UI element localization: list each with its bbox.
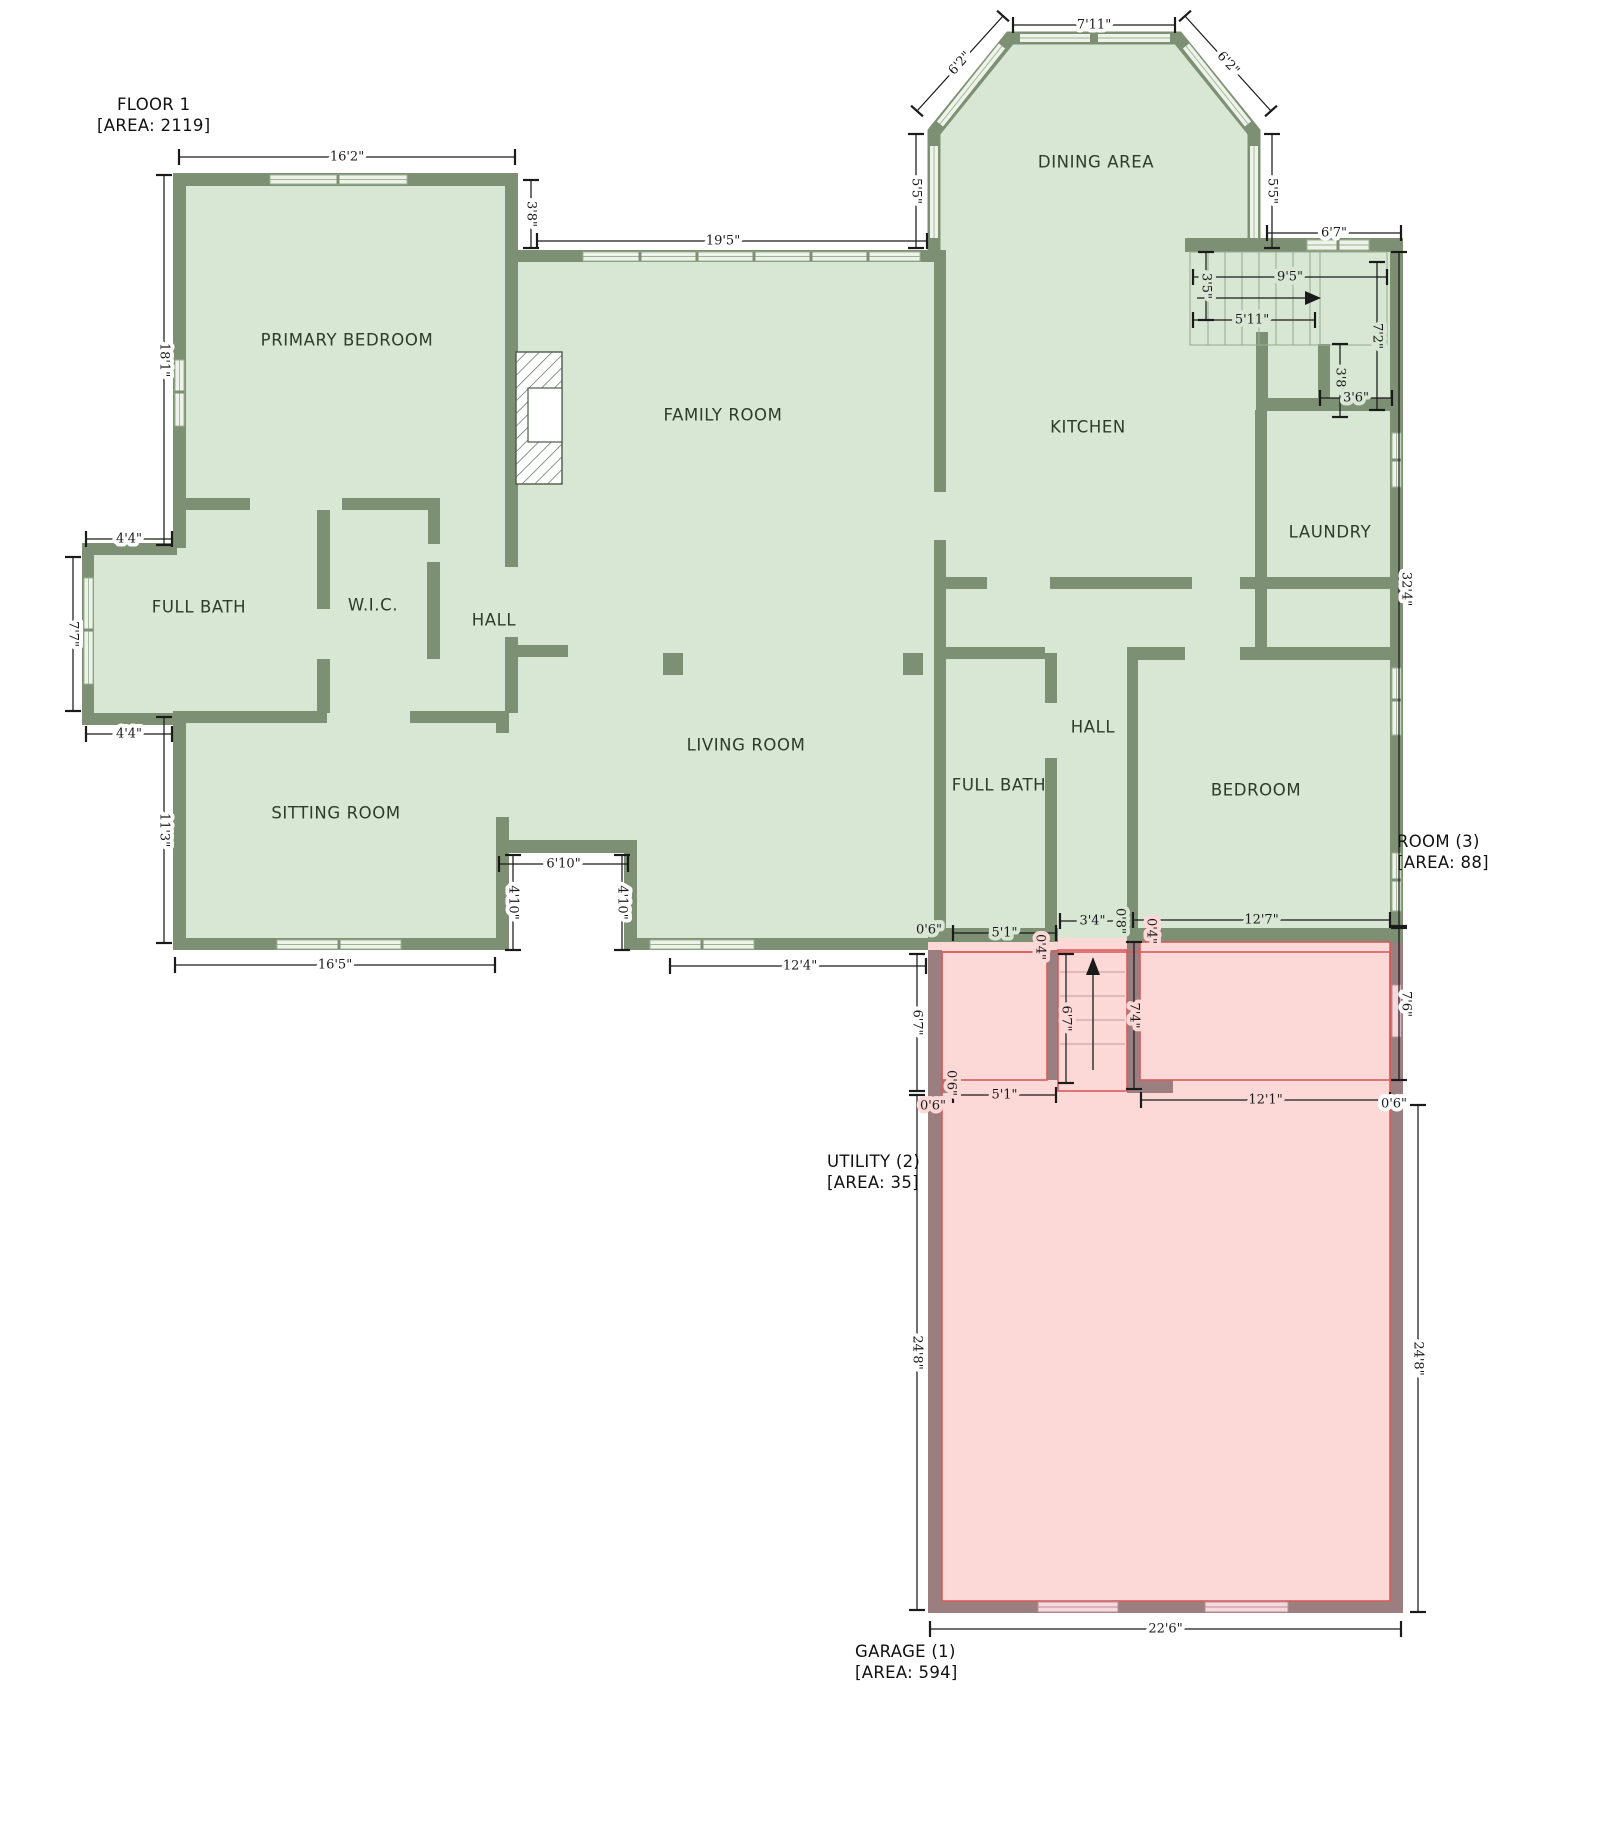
dimension-label: 0'6" [916, 923, 942, 938]
floorplan-page: 16'2"3'8"19'5"7'11"6'2"6'2"5'5"5'5"6'7"1… [0, 0, 1600, 1846]
dimension-label: 3'5" [1199, 273, 1214, 299]
dimension-label: 0'8" [1113, 908, 1128, 934]
dimension: 24'8" [1410, 1105, 1426, 1612]
dimension-label: 4'4" [116, 532, 142, 547]
utility-label: UTILITY (2) [827, 1152, 920, 1171]
dimension: 0'6" [916, 923, 942, 938]
room-label: W.I.C. [348, 596, 398, 615]
dimension: 0'6" [920, 1099, 946, 1114]
dimension-label: 3'6" [1343, 391, 1369, 406]
dimension-label: 0'4" [1033, 934, 1048, 960]
dimension-label: 22'6" [1148, 1622, 1182, 1637]
dimension-label: 9'5" [1277, 270, 1303, 285]
dimension-label: 5'5" [909, 178, 924, 204]
dimension-label: 24'8" [910, 1335, 925, 1369]
dimension-label: 7'2" [1370, 323, 1385, 349]
dimension-label: 12'4" [783, 959, 817, 974]
room-label: HALL [472, 611, 517, 630]
dimension-label: 11'3" [157, 813, 172, 847]
dimension: 12'4" [670, 958, 926, 974]
dimension: 6'10" [499, 856, 628, 872]
dimension-label: 12'7" [1244, 913, 1278, 928]
dimension-label: 0'6" [1381, 1097, 1407, 1112]
dimension-label: 0'6" [944, 1070, 959, 1096]
room-label: FULL BATH [952, 776, 1046, 795]
dimension-label: 5'5" [1265, 178, 1280, 204]
dimension-label: 32'4" [1399, 572, 1414, 606]
dimension-label: 4'4" [116, 727, 142, 742]
room-label: LAUNDRY [1289, 523, 1372, 542]
dimension-label: 6'7" [1059, 1005, 1074, 1031]
dimension-label: 0'4" [1144, 918, 1159, 944]
dimension: 16'2" [179, 149, 515, 165]
dimension-label: 16'2" [330, 150, 364, 165]
dimension: 19'5" [537, 233, 927, 249]
dimension-label: 12'1" [1248, 1093, 1282, 1108]
dimension-label: 6'10" [546, 857, 580, 872]
dimension: 6'7" [909, 954, 925, 1091]
dimension: 18'1" [156, 175, 172, 545]
page: { "labels": { "floor": {"line1": "FLOOR … [0, 0, 1600, 1846]
garage-area: [AREA: 594] [855, 1663, 958, 1682]
dimension-label: 5'1" [991, 1088, 1017, 1103]
dimension-label: 4'10" [615, 885, 630, 919]
dimension: 0'4" [1144, 918, 1159, 944]
dimension: 16'5" [175, 957, 495, 973]
utility-area: [AREA: 35] [827, 1173, 919, 1192]
room-label: SITTING ROOM [271, 804, 400, 823]
dimension-label: 16'5" [318, 958, 352, 973]
dimension: 4'4" [86, 726, 172, 742]
dimension: 0'8" [1113, 908, 1128, 934]
garage-label: GARAGE (1) [855, 1642, 956, 1661]
floor-title: FLOOR 1 [117, 95, 190, 114]
dimension-label: 7'6" [1399, 991, 1414, 1017]
dimension-label: 19'5" [706, 234, 740, 249]
dimension: 11'3" [156, 717, 172, 943]
dimension-label: 18'1" [157, 343, 172, 377]
dimension-label: 5'11" [1235, 313, 1269, 328]
dimension-label: 7'4" [1127, 1002, 1142, 1028]
dimension-label: 5'1" [991, 926, 1017, 941]
dimension-label: 3'4" [1079, 914, 1105, 929]
dimension-label: 24'8" [1411, 1341, 1426, 1375]
dimension: 0'6" [944, 1070, 959, 1096]
room3-area: [AREA: 88] [1397, 853, 1489, 872]
dimension: 7'11" [1013, 17, 1175, 33]
room3-label: ROOM (3) [1397, 832, 1480, 851]
dimension-label: 6'7" [910, 1009, 925, 1035]
room-label: FAMILY ROOM [664, 406, 783, 425]
dimension-label: 4'10" [506, 885, 521, 919]
room-label: PRIMARY BEDROOM [261, 331, 434, 350]
room-label: FULL BATH [152, 598, 246, 617]
room-label: KITCHEN [1050, 418, 1126, 437]
room-label: HALL [1071, 718, 1116, 737]
dimension-label: 7'11" [1077, 18, 1111, 33]
dimension: 0'6" [1381, 1097, 1407, 1112]
floor-plan-svg: 16'2"3'8"19'5"7'11"6'2"6'2"5'5"5'5"6'7"1… [0, 0, 1600, 1846]
dimension-label: 6'7" [1321, 226, 1347, 241]
floor-area: [AREA: 2119] [97, 116, 210, 135]
room-label: DINING AREA [1038, 153, 1154, 172]
room-label: BEDROOM [1211, 781, 1301, 800]
dimension: 0'4" [1033, 934, 1048, 960]
dimension: 7'7" [65, 557, 81, 711]
dimension: 5'5" [908, 134, 924, 248]
room-label: LIVING ROOM [687, 736, 806, 755]
dimension-label: 3'8" [524, 201, 539, 227]
dimension-label: 7'7" [66, 621, 81, 647]
dimension-label: 0'6" [920, 1099, 946, 1114]
dimension: 22'6" [930, 1621, 1401, 1637]
